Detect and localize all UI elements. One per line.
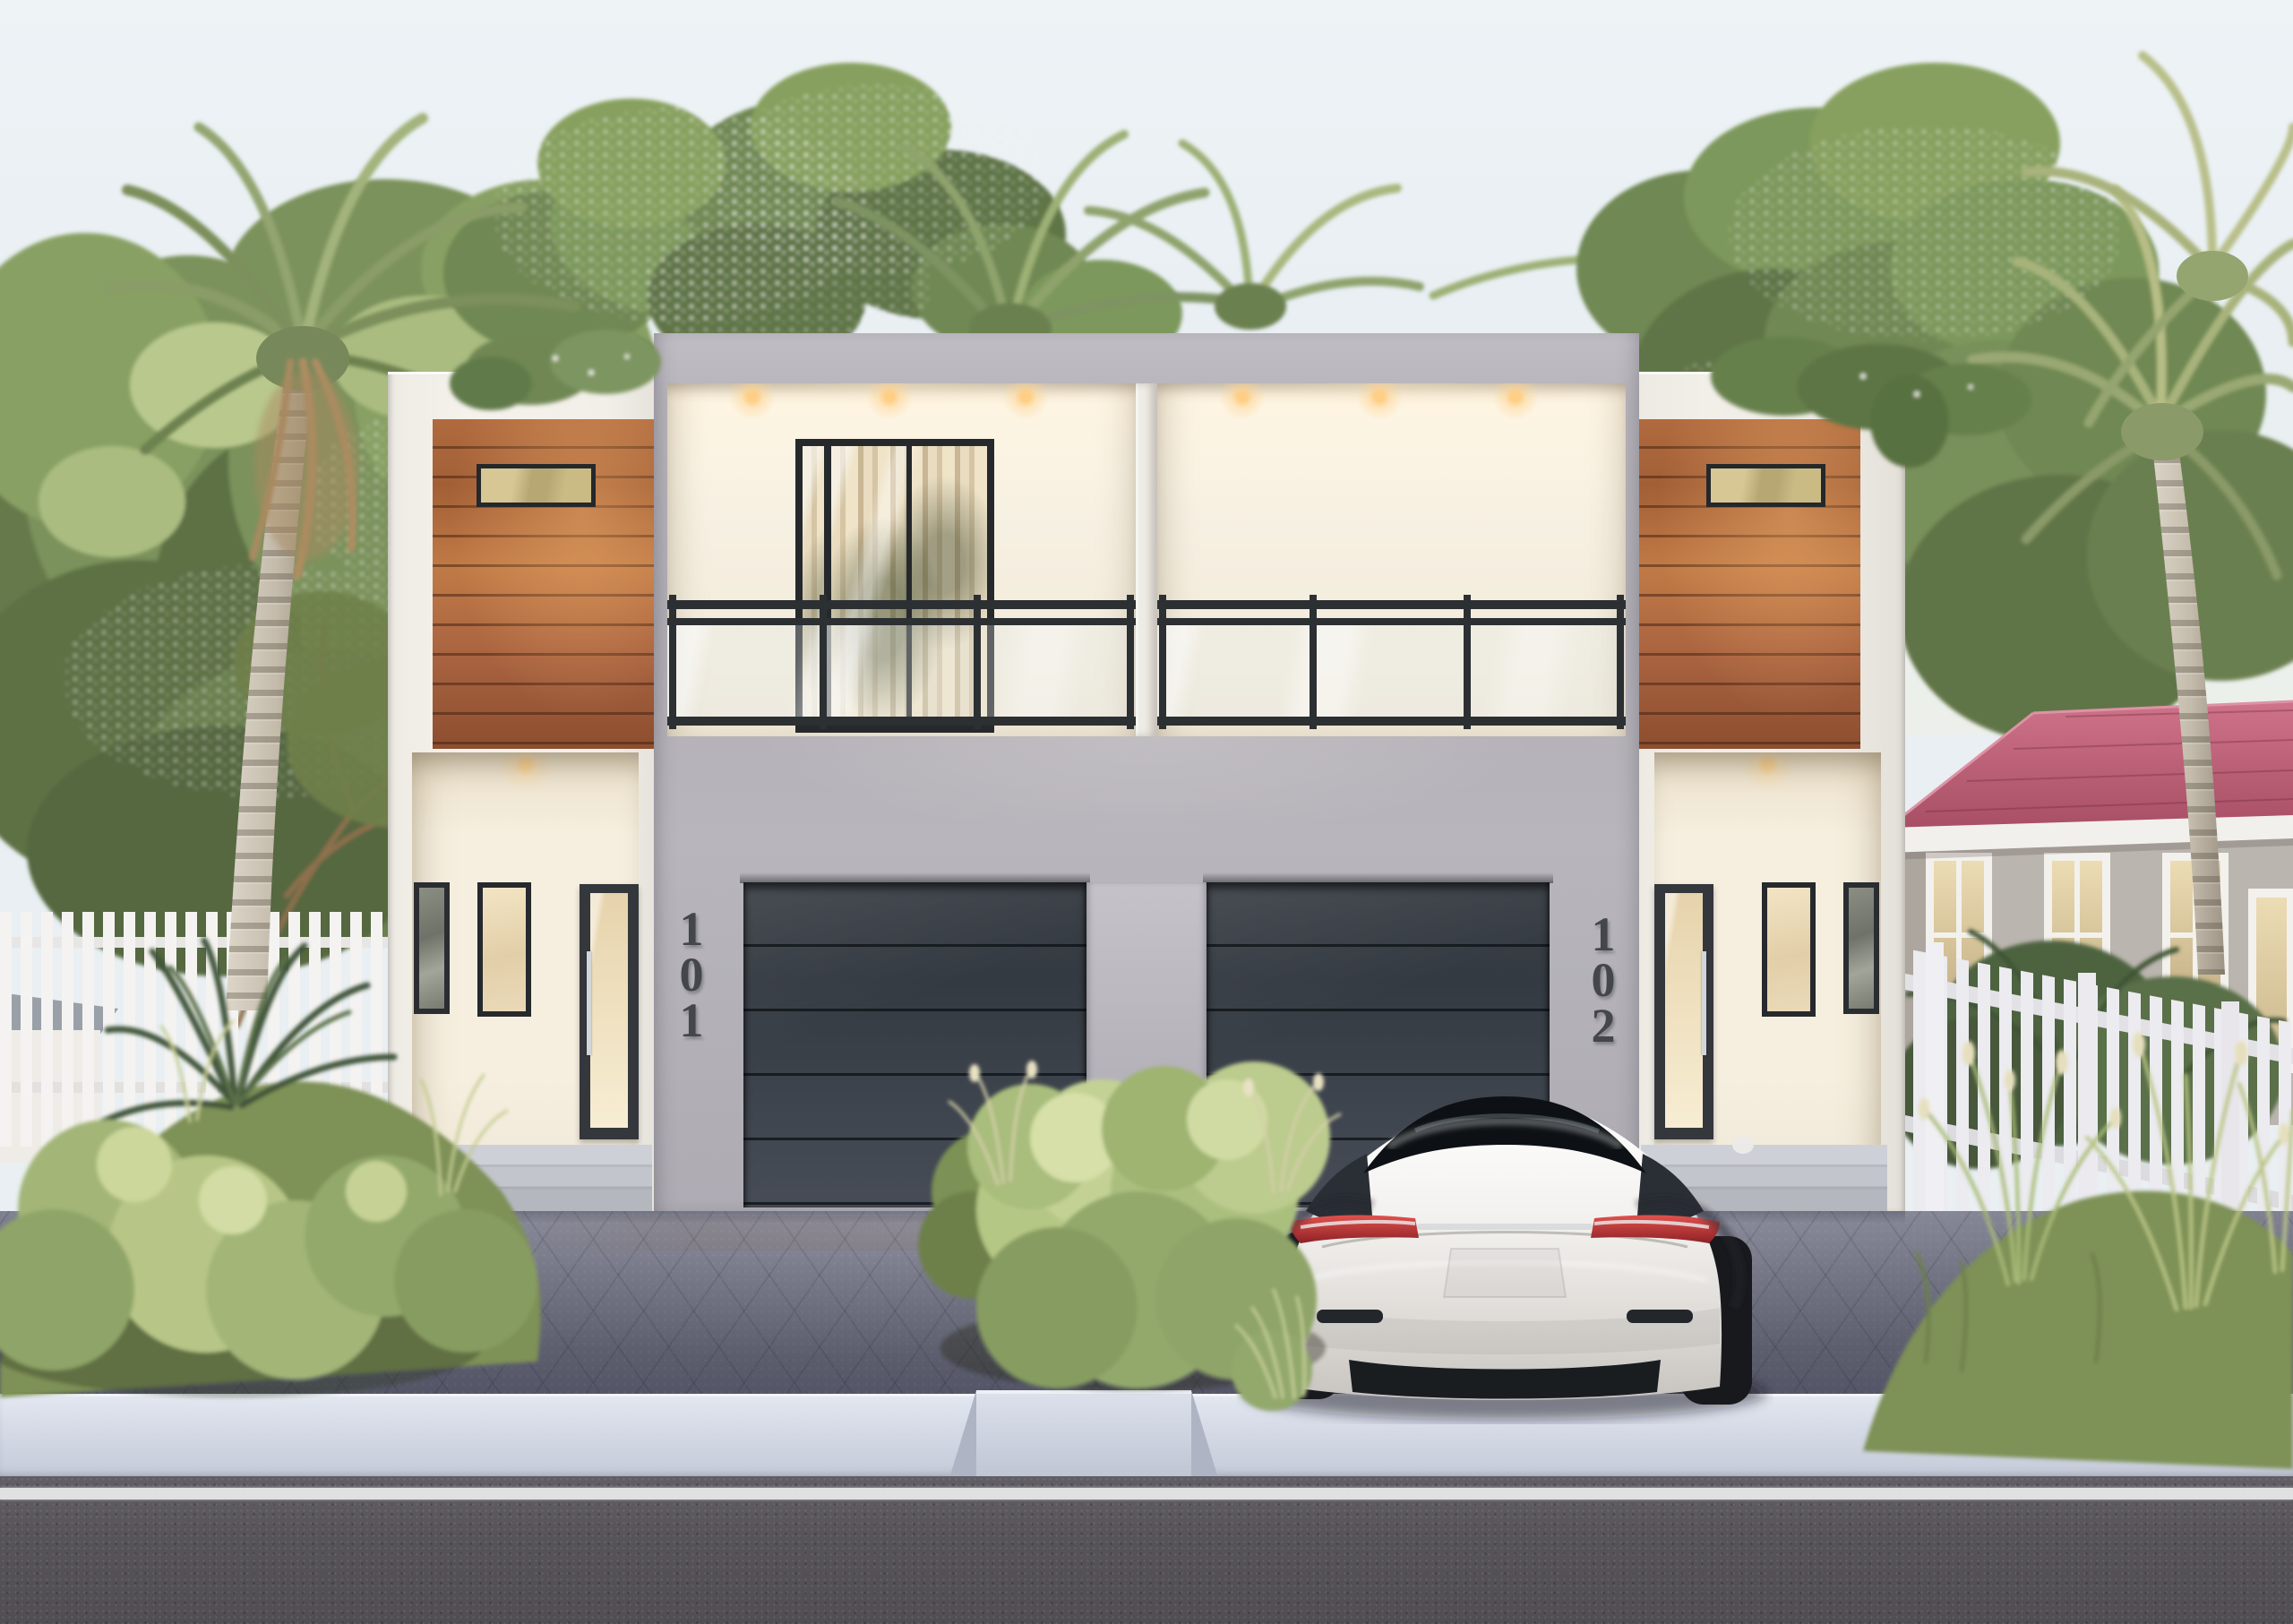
left-planting-bed <box>0 941 541 1397</box>
foreground-landscaping <box>0 0 2293 1624</box>
right-grass-bed <box>1863 1032 2293 1469</box>
architectural-rendering: 101 102 <box>0 0 2293 1624</box>
